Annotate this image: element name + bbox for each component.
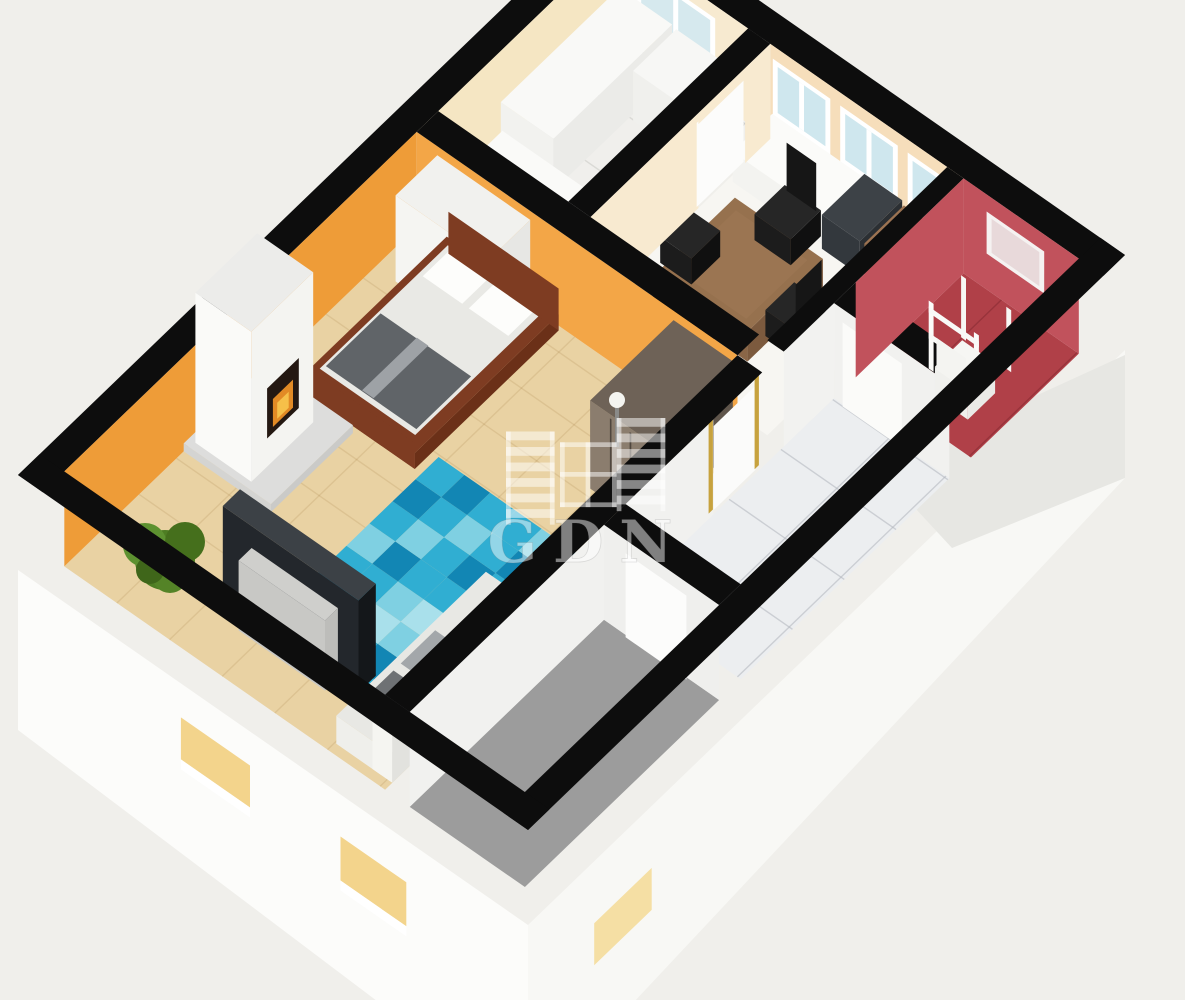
ornate-door-trim-left [709,420,713,514]
floorplan-page: GDN [0,0,1185,1000]
tv-panel-south [359,584,376,693]
floorplan-3d-render: GDN [0,0,1185,1000]
floor-lamp-shade [609,392,625,408]
render-root [18,0,1125,1000]
watermark-text: GDN [488,508,689,576]
kitchen-window-1-mullion [799,82,804,131]
kitchen-window-2-mullion [867,129,872,178]
ornate-door-trim-right [755,375,759,469]
